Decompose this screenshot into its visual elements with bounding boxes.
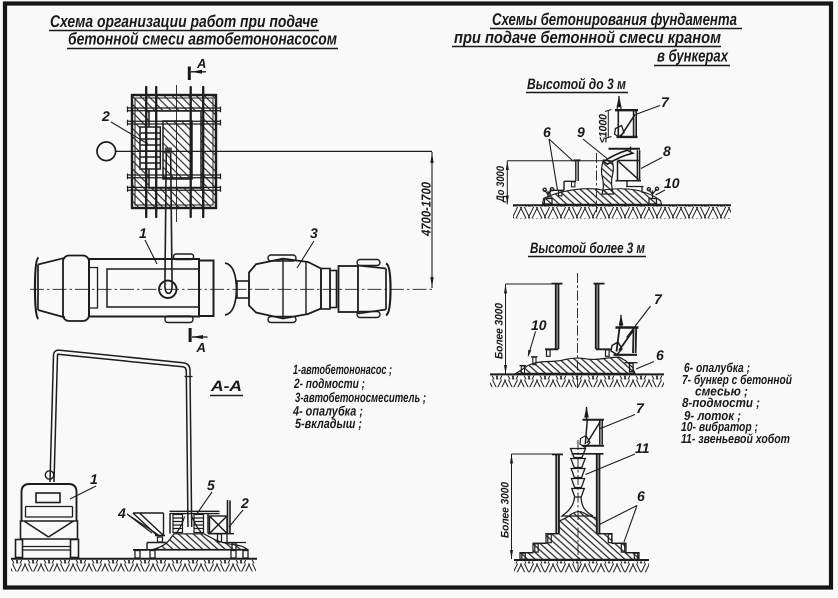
- svg-text:Высотой до 3 м: Высотой до 3 м: [527, 76, 626, 93]
- svg-text:1-автобетононасос ;: 1-автобетононасос ;: [293, 362, 392, 377]
- svg-text:бетонной смеси автобетононасос: бетонной смеси автобетононасосом: [68, 30, 337, 49]
- svg-text:До 3000: До 3000: [495, 165, 507, 203]
- svg-text:Более 3000: Более 3000: [494, 302, 506, 359]
- svg-text:6: 6: [637, 488, 645, 504]
- svg-text:2: 2: [240, 495, 249, 511]
- svg-text:А: А: [196, 340, 206, 355]
- svg-text:6: 6: [543, 124, 551, 140]
- svg-text:при подаче бетонной смеси кран: при подаче бетонной смеси краном: [454, 28, 721, 47]
- svg-text:А-А: А-А: [210, 378, 242, 395]
- svg-text:Схемы бетонирования фундамента: Схемы бетонирования фундамента: [492, 10, 737, 29]
- svg-text:1: 1: [90, 471, 98, 487]
- svg-text:1: 1: [139, 225, 147, 241]
- svg-text:5-вкладыш ;: 5-вкладыш ;: [295, 416, 362, 431]
- svg-text:3: 3: [310, 225, 318, 241]
- svg-text:≤1000: ≤1000: [598, 113, 610, 143]
- svg-text:11: 11: [635, 440, 650, 456]
- svg-text:2- подмости ;: 2- подмости ;: [293, 376, 365, 391]
- svg-text:Более 3000: Более 3000: [500, 481, 512, 538]
- svg-text:в бункерах: в бункерах: [657, 47, 729, 66]
- svg-text:Высотой более 3 м: Высотой более 3 м: [530, 240, 645, 257]
- svg-text:10: 10: [664, 175, 680, 191]
- svg-text:7: 7: [661, 94, 670, 110]
- svg-text:6: 6: [656, 347, 664, 363]
- svg-text:А: А: [196, 56, 206, 71]
- svg-text:10: 10: [531, 317, 547, 333]
- svg-text:5: 5: [207, 477, 215, 493]
- svg-text:7: 7: [654, 291, 663, 307]
- svg-text:7: 7: [636, 400, 645, 416]
- svg-text:8: 8: [663, 143, 671, 159]
- svg-text:9: 9: [577, 124, 585, 140]
- svg-text:11- звеньевой хобот: 11- звеньевой хобот: [681, 431, 790, 446]
- svg-text:4700-1700: 4700-1700: [419, 181, 434, 237]
- svg-text:Схема организации работ при по: Схема организации работ при подаче: [50, 12, 318, 31]
- svg-text:2: 2: [101, 108, 110, 124]
- svg-text:4: 4: [117, 505, 126, 521]
